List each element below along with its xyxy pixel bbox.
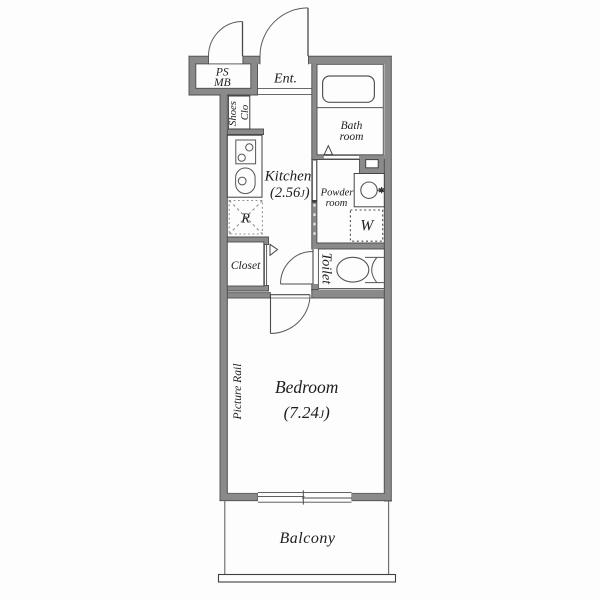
svg-text:Balcony: Balcony	[280, 530, 336, 547]
svg-text:R: R	[240, 212, 250, 227]
svg-text:Clo: Clo	[239, 104, 251, 120]
svg-text:Shoes: Shoes	[227, 101, 239, 126]
svg-text:room: room	[326, 198, 348, 209]
svg-text:(2.56J): (2.56J)	[270, 185, 310, 201]
svg-text:Bedroom: Bedroom	[275, 377, 339, 397]
svg-text:W: W	[360, 218, 375, 235]
svg-text:Kitchen: Kitchen	[264, 169, 312, 185]
svg-text:Ent.: Ent.	[273, 71, 297, 86]
svg-text:room: room	[340, 131, 364, 143]
svg-text:(7.24J): (7.24J)	[284, 403, 331, 422]
svg-text:Powder: Powder	[320, 188, 355, 199]
svg-text:Toilet: Toilet	[319, 253, 334, 285]
svg-text:Closet: Closet	[231, 260, 261, 272]
svg-text:Picture Rail: Picture Rail	[231, 364, 244, 421]
svg-text:MB: MB	[213, 77, 231, 89]
